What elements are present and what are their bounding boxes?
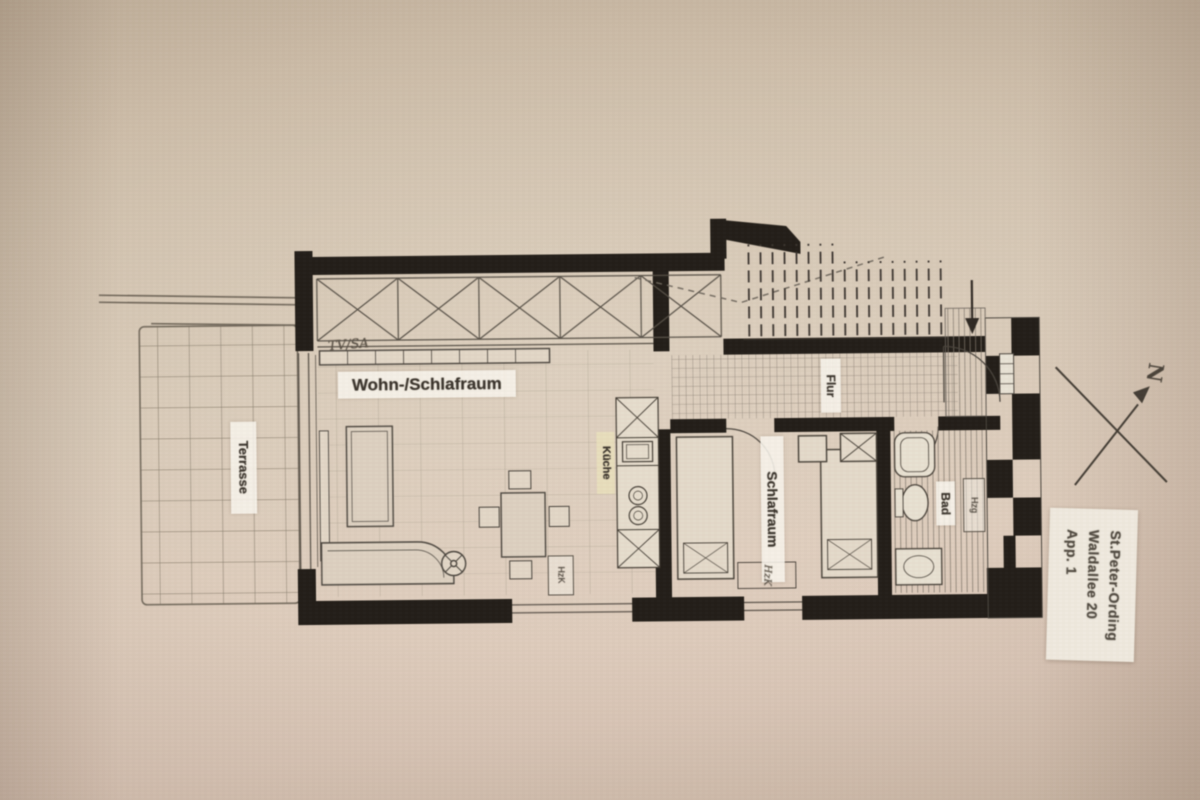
- bed: [821, 449, 878, 578]
- hall-tile-grid: [672, 352, 959, 419]
- annotation-hzk-wohnraum: HzK: [548, 555, 574, 595]
- room-label-terrasse: Terrasse: [230, 422, 257, 514]
- bathroom-sink: [896, 548, 942, 584]
- floor-plan-svg: [0, 0, 1200, 800]
- title-line-location: St.Peter-Ording: [1101, 530, 1126, 642]
- corner-sofa: [321, 542, 453, 585]
- annotation-hzg-bad: Hzg: [963, 478, 986, 532]
- floor-plan-drawing: Terrasse Wohn-/Schlafraum TV/SA Küche Fl…: [0, 0, 1200, 800]
- room-label-wohn-schlafraum: Wohn-/Schlafraum: [338, 370, 516, 399]
- title-line-street: Waldallee 20: [1080, 529, 1105, 641]
- north-compass: [1056, 366, 1167, 485]
- sofa-bed: [346, 426, 393, 526]
- room-label-kueche: Küche: [596, 432, 615, 494]
- room-label-schlafraum: Schlafraum: [760, 436, 785, 582]
- terrace: [139, 325, 300, 605]
- photographed-floor-plan: Terrasse Wohn-/Schlafraum TV/SA Küche Fl…: [0, 0, 1200, 800]
- compass-arrow-head: [1133, 386, 1150, 403]
- title-line-apartment: App. 1: [1058, 528, 1083, 640]
- dining-table: [501, 493, 546, 557]
- annotation-hzk-schlafraum: HzK: [762, 564, 773, 586]
- nightstand: [798, 436, 826, 462]
- kitchen-fixtures: [616, 397, 660, 567]
- room-label-flur: Flur: [821, 358, 842, 412]
- title-block: St.Peter-Ording Waldallee 20 App. 1: [1046, 508, 1138, 662]
- railing-lines: [99, 293, 312, 327]
- room-label-bad: Bad: [936, 481, 955, 525]
- north-letter: N: [1141, 361, 1169, 384]
- toilet: [902, 485, 928, 521]
- staircase-hatching: [742, 242, 947, 339]
